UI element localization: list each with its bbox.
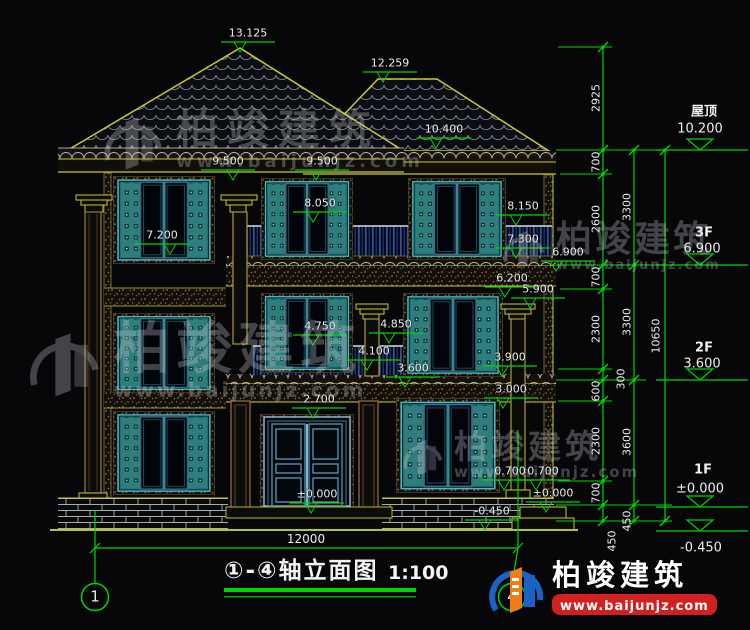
level-name-1f: 1F	[694, 464, 712, 477]
elevation-mark-label: 5.900	[522, 284, 554, 295]
elevation-mark-label: ±0.000	[297, 489, 338, 500]
dimension-label: 600	[591, 381, 602, 402]
window-2f-center	[261, 293, 353, 373]
dimension-label: 300	[616, 369, 627, 390]
dimension-label: 2925	[591, 84, 602, 112]
elevation-mark-label: 3.600	[397, 363, 429, 374]
brand-url-bar: www.baijunjz.com	[552, 594, 717, 616]
elevation-mark-label: 12.259	[371, 58, 410, 69]
window-3f-left	[113, 176, 215, 264]
elevation-mark-label: 8.050	[304, 198, 336, 209]
title-underline	[224, 588, 416, 592]
dimension-label: 700	[591, 483, 602, 504]
elevation-mark-label: 8.150	[507, 201, 539, 212]
dimension-label: 700	[591, 267, 602, 288]
dimension-label: 700	[591, 152, 602, 173]
elevation-drawing	[0, 0, 750, 630]
elevation-mark-label: ±0.000	[533, 488, 574, 499]
overall-width-dimension: 12000	[287, 532, 325, 546]
elevation-mark-label: 9.500	[306, 156, 338, 167]
elevation-mark-label: 10.400	[425, 124, 464, 135]
elevation-mark-label: 13.125	[229, 28, 268, 39]
elevation-mark-label: 4.850	[380, 319, 412, 330]
dimension-label: 2300	[591, 315, 602, 343]
dimension-label: 10650	[651, 319, 662, 354]
axis-label-1: 1	[90, 590, 100, 605]
cad-canvas: 13.12512.25910.4009.5009.5008.1508.0507.…	[0, 0, 750, 630]
level-name-roof: 屋顶	[691, 106, 717, 119]
dimension-label: 450	[607, 531, 618, 552]
level-value-3f: 6.900	[683, 243, 720, 256]
elevation-mark-label: 3.000	[495, 384, 527, 395]
dimension-label: 2600	[591, 205, 602, 233]
elevation-mark-label: 6.900	[552, 247, 584, 258]
window-1f-left	[113, 411, 215, 495]
level-name-2f: 2F	[695, 342, 713, 355]
elevation-mark-label: 7.200	[146, 230, 178, 241]
windows	[113, 176, 506, 508]
elevation-mark-label: 7.300	[507, 234, 539, 245]
elevation-mark-label: 4.750	[304, 321, 336, 332]
level-marker-icon	[687, 496, 713, 507]
window-3f-right	[408, 178, 506, 260]
elevation-mark-label: 0.700	[527, 466, 559, 477]
level-marker-icon	[687, 520, 713, 531]
window-1f-right	[396, 398, 500, 493]
elevation-marker-icon	[383, 333, 395, 343]
elevation-mark-label: 2.700	[303, 394, 335, 405]
drawing-scale: 1:100	[388, 564, 448, 583]
level-marker-icon	[687, 139, 713, 150]
elevation-mark-label: 3.900	[494, 352, 526, 363]
dimension-label: 3300	[622, 193, 633, 221]
elevation-mark-label: 4.100	[358, 346, 390, 357]
level-value-basement: -0.450	[680, 542, 722, 555]
dimension-label: 3600	[622, 428, 633, 456]
drawing-title: ①-④轴立面图	[224, 560, 379, 583]
level-value-1f: ±0.000	[676, 483, 724, 496]
elevation-marker-icon	[510, 215, 522, 225]
level-value-2f: 3.600	[683, 358, 720, 371]
dimension-label: 3300	[622, 308, 633, 336]
window-2f-left	[113, 313, 215, 393]
brand-logo-icon	[486, 560, 544, 622]
window-3f-center	[261, 178, 353, 260]
dimension-label: 2300	[591, 427, 602, 455]
brand-name: 柏竣建筑	[552, 560, 717, 592]
level-value-roof: 10.200	[677, 123, 723, 136]
brand-url: www.baijunjz.com	[560, 599, 709, 614]
elevation-mark-label: 0.700	[494, 466, 526, 477]
brand-logo: 柏竣建筑 www.baijunjz.com	[486, 560, 717, 622]
elevation-mark-label: 9.500	[212, 156, 244, 167]
level-name-3f: 3F	[695, 227, 713, 240]
elevation-mark-label: -0.450	[474, 506, 509, 517]
dimension-label: 450	[622, 511, 633, 532]
